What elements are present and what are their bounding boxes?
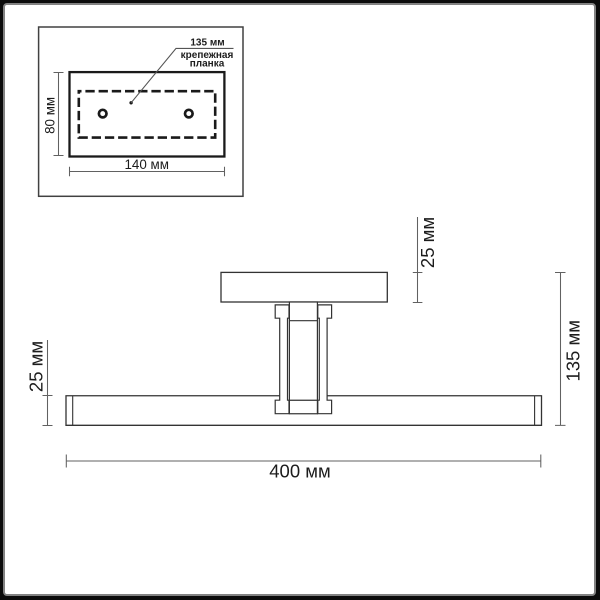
- svg-text:25 мм: 25 мм: [417, 217, 438, 268]
- svg-text:140 мм: 140 мм: [124, 157, 168, 172]
- svg-text:планка: планка: [190, 59, 225, 70]
- svg-text:135 мм: 135 мм: [190, 38, 224, 49]
- svg-text:135 мм: 135 мм: [563, 320, 584, 381]
- svg-text:400 мм: 400 мм: [269, 460, 330, 481]
- svg-text:25 мм: 25 мм: [25, 341, 46, 392]
- svg-text:80 мм: 80 мм: [43, 97, 58, 134]
